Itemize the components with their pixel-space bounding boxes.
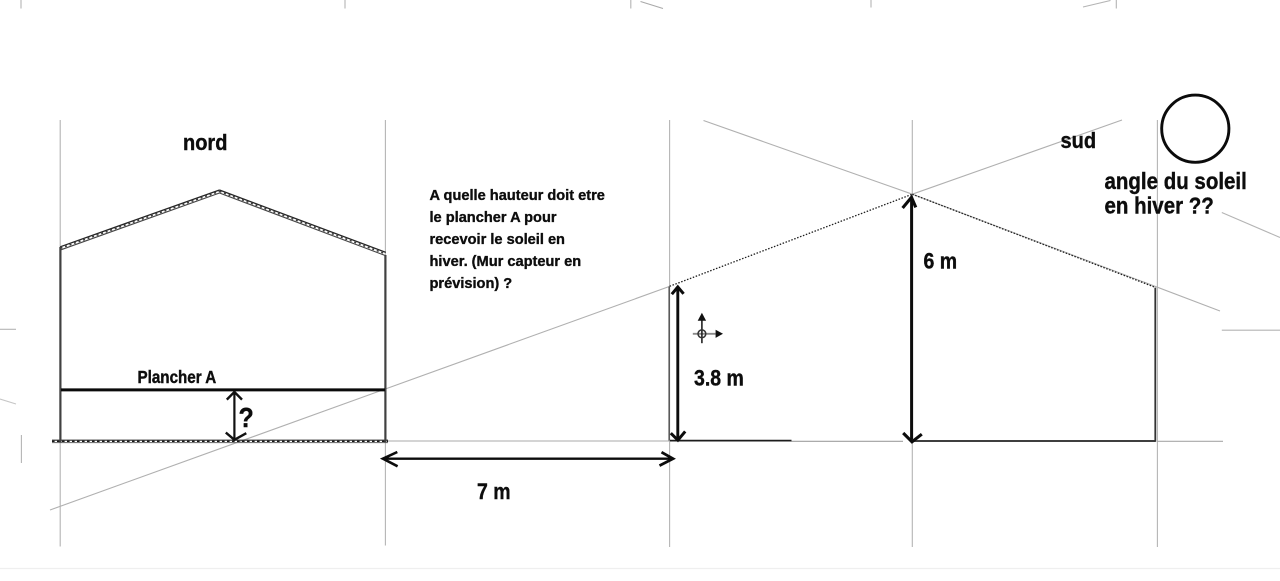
- svg-text:A quelle hauteur doit etre: A quelle hauteur doit etre: [430, 188, 605, 204]
- svg-text:sud: sud: [1061, 128, 1097, 153]
- svg-text:recevoir le soleil en: recevoir le soleil en: [430, 232, 566, 248]
- svg-text:en hiver ??: en hiver ??: [1105, 192, 1214, 218]
- svg-text:6 m: 6 m: [924, 249, 958, 273]
- svg-text:hiver. (Mur capteur en: hiver. (Mur capteur en: [430, 254, 582, 270]
- svg-text:le plancher A pour: le plancher A pour: [430, 210, 557, 226]
- svg-text:nord: nord: [183, 130, 227, 155]
- svg-text:7 m: 7 m: [477, 480, 511, 504]
- svg-text:?: ?: [239, 402, 254, 433]
- svg-text:3.8 m: 3.8 m: [694, 366, 744, 390]
- svg-text:prévision) ?: prévision) ?: [430, 276, 513, 292]
- svg-text:Plancher A: Plancher A: [138, 368, 217, 387]
- svg-text:angle du soleil: angle du soleil: [1105, 168, 1247, 194]
